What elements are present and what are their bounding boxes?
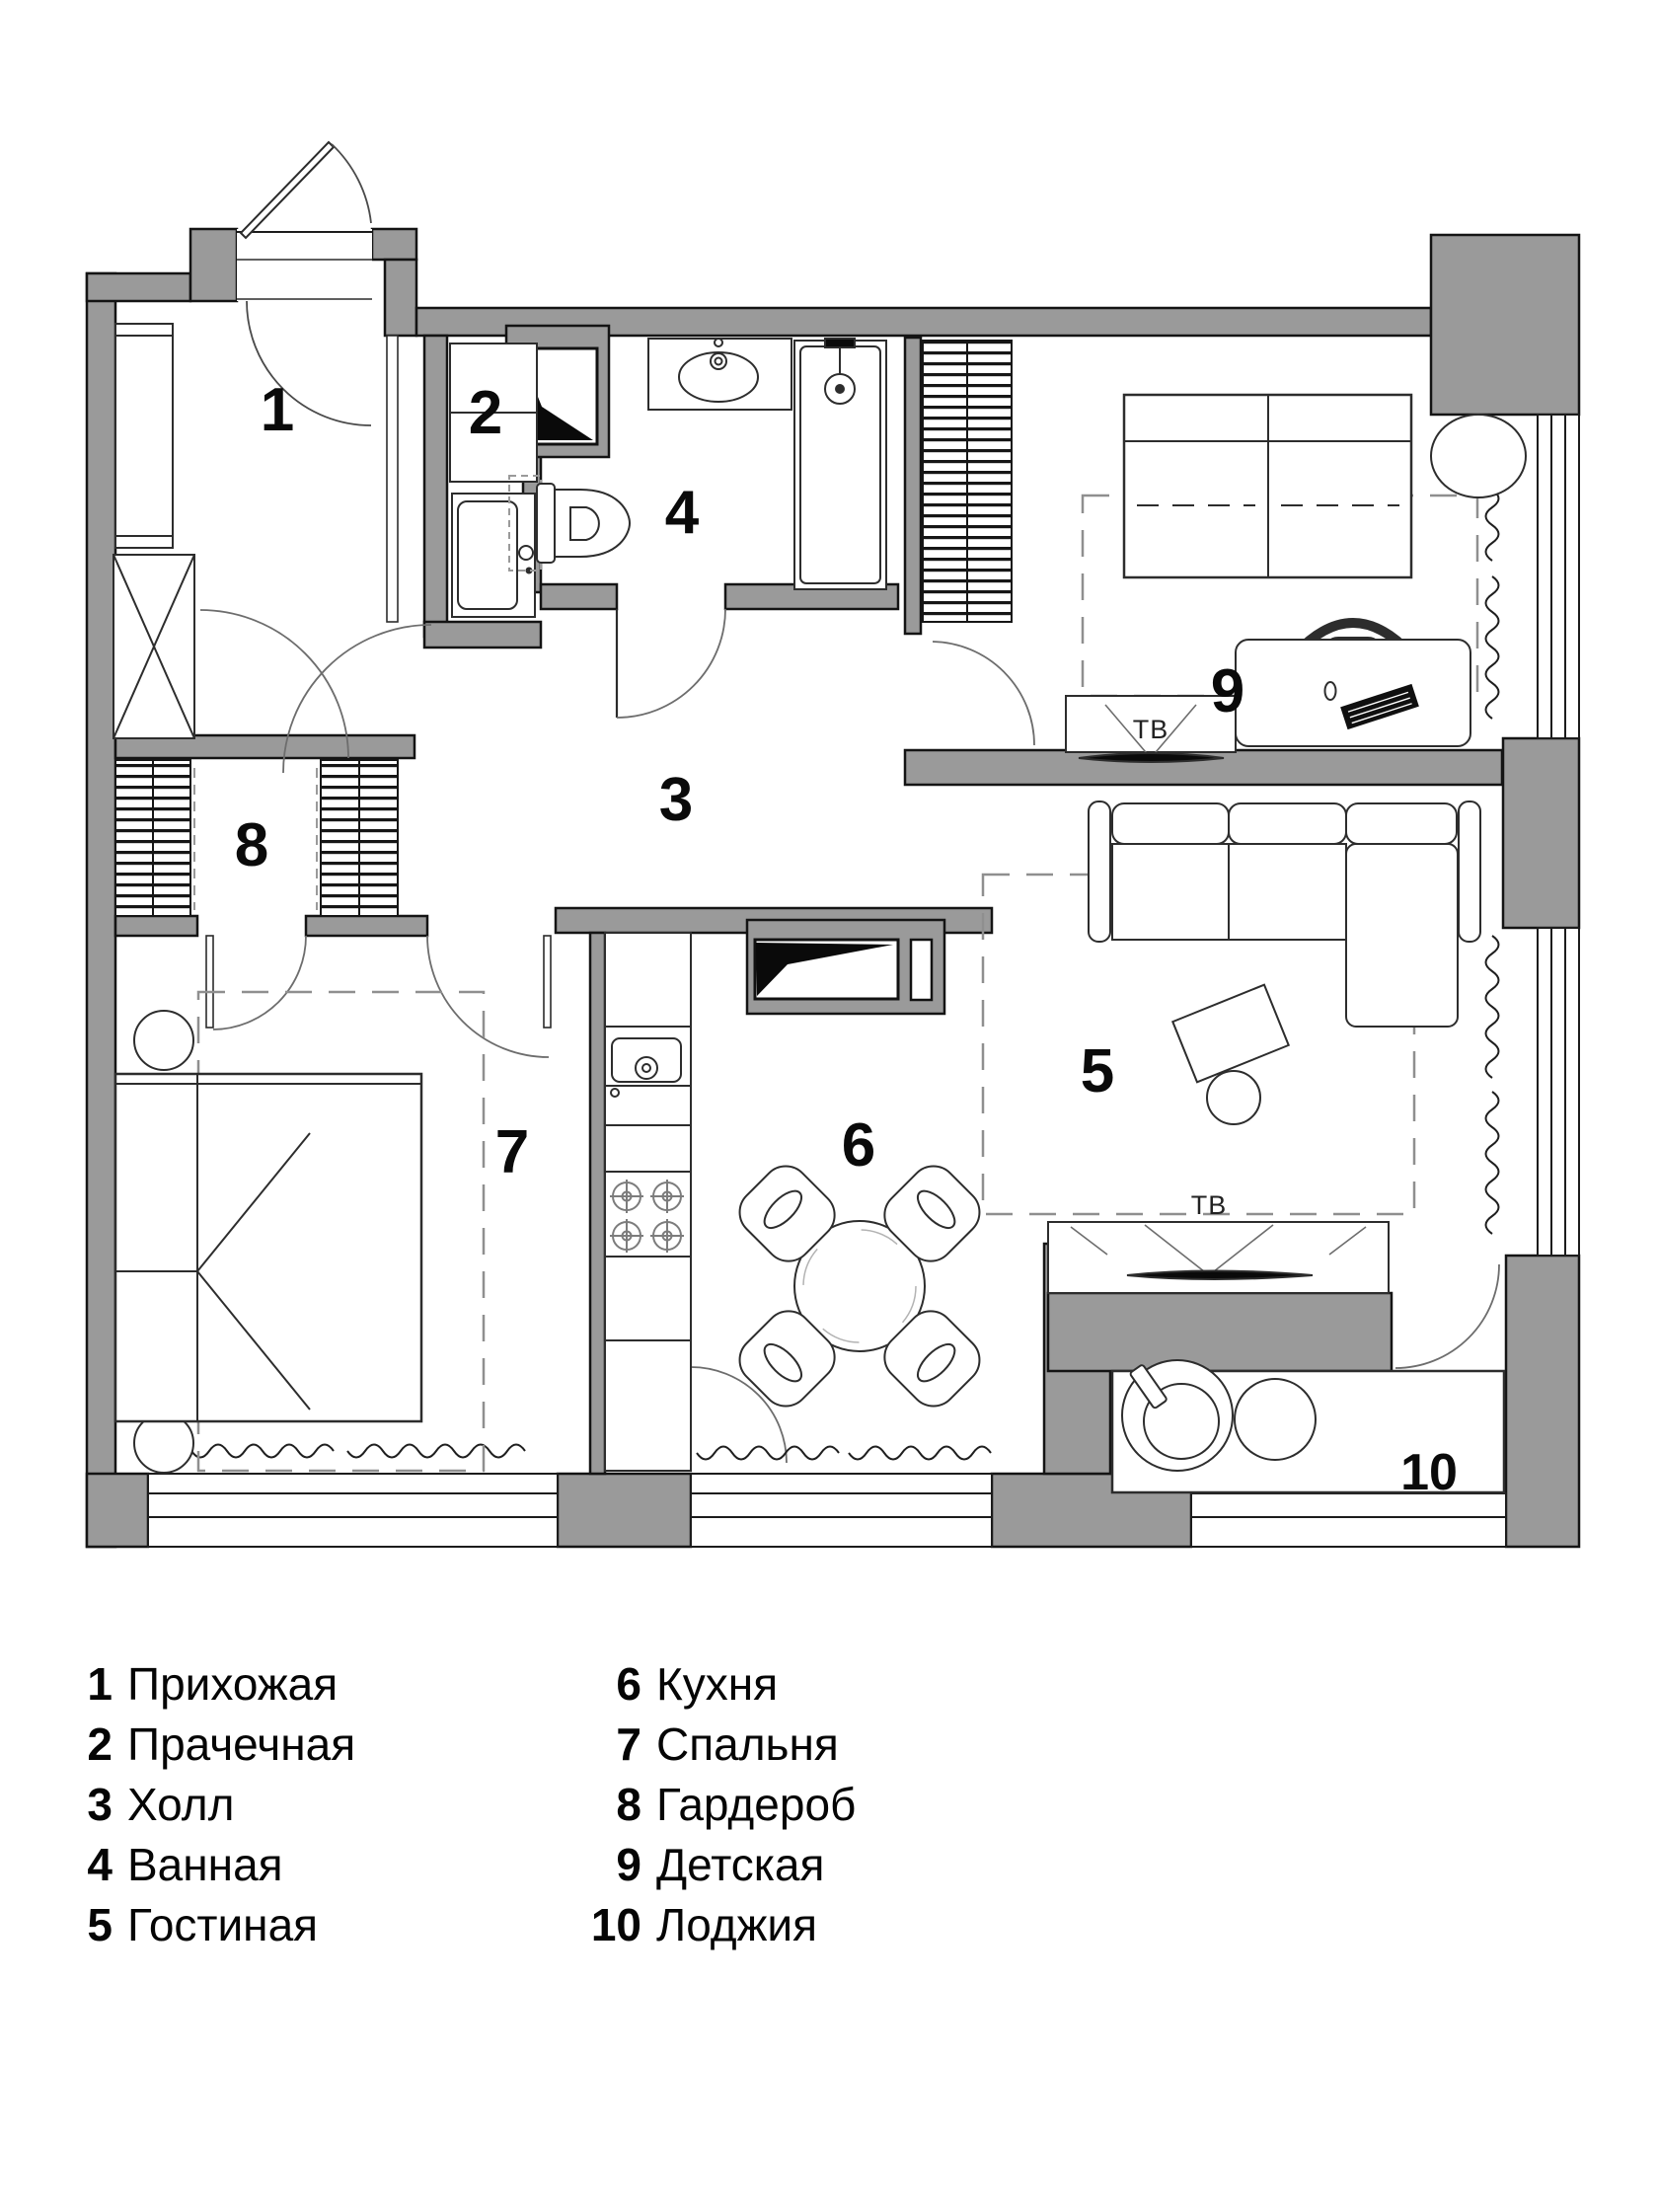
entrance-door-leaf: [241, 142, 334, 238]
entrance-door-swing: [332, 144, 371, 223]
sofa-bed: [1124, 395, 1411, 577]
curtain-kitchen-window-2: [849, 1447, 991, 1460]
legend-number: 2: [87, 1715, 113, 1775]
legend-label: Гардероб: [656, 1775, 856, 1835]
kitchen-sink: [612, 1038, 681, 1082]
entrance-step-block: [190, 229, 237, 301]
legend-number: 9: [565, 1835, 641, 1895]
kitchen-left-wall: [590, 933, 605, 1474]
bath-nursery-wall: [905, 338, 921, 634]
wardrobe-shelves-right: [317, 760, 398, 916]
legend-number: 1: [87, 1654, 113, 1715]
washing-machine: [452, 494, 535, 617]
window-living: [1538, 928, 1579, 1256]
window-nursery: [1538, 415, 1579, 738]
legend-label: Детская: [656, 1835, 824, 1895]
hallway-wardrobe-x: [113, 555, 194, 738]
window-kitchen: [691, 1474, 992, 1547]
curtain-kitchen-window: [697, 1447, 839, 1460]
room-7-bedroom: [115, 1011, 421, 1473]
bathroom-door: [617, 609, 725, 718]
curtain-nursery-window-2: [1486, 576, 1499, 719]
curtain-bedroom-window-2: [347, 1445, 525, 1458]
bath-bottom-wall-left: [541, 584, 617, 609]
room-label-2: 2: [469, 379, 502, 447]
corner-pier-bottom-right: [1506, 1256, 1579, 1547]
tv-label-living: ТВ: [1191, 1190, 1228, 1220]
legend-item: 7Спальня: [565, 1715, 856, 1775]
floor-plan: 1 2 3 4 5 6 7 8 9 10 ТВ ТВ: [0, 0, 1658, 1639]
bedroom-door: [427, 936, 551, 1057]
legend-item: 9Детская: [565, 1835, 856, 1895]
room-label-6: 6: [842, 1111, 875, 1180]
laundry-bottom-wall: [424, 622, 541, 648]
legend-item: 3Холл: [87, 1775, 355, 1835]
entrance: [237, 142, 372, 425]
sink-vanity: [648, 339, 791, 410]
loggia-door-swing: [1395, 1264, 1499, 1368]
legend-label: Прачечная: [127, 1715, 355, 1775]
legend-number: 8: [565, 1775, 641, 1835]
computer-mouse: [1325, 682, 1336, 700]
window-pier-bottom: [558, 1474, 691, 1547]
laundry-left-wall: [424, 336, 447, 637]
room-label-9: 9: [1211, 657, 1244, 725]
room-label-8: 8: [235, 811, 268, 879]
curtain-living-window: [1486, 936, 1499, 1078]
coffee-table: [1172, 985, 1288, 1083]
legend-label: Лоджия: [656, 1895, 817, 1955]
wardrobe-shelves-left: [115, 760, 194, 916]
ottoman: [1431, 415, 1526, 497]
tv-label-nursery: ТВ: [1133, 715, 1169, 744]
room-label-7: 7: [495, 1118, 529, 1186]
room-label-5: 5: [1081, 1037, 1114, 1106]
room-label-4: 4: [665, 479, 700, 547]
legend-number: 7: [565, 1715, 641, 1775]
exterior-wall-left: [87, 273, 115, 1547]
entrance-right-pier: [372, 229, 416, 260]
legend-item: 5Гостиная: [87, 1895, 355, 1955]
entrance-right-pier-lower: [385, 260, 416, 336]
hallway-bench: [115, 324, 173, 548]
curtain-living-window-2: [1486, 1092, 1499, 1234]
legend-number: 10: [565, 1895, 641, 1955]
corner-pier-bottom-left: [87, 1474, 148, 1547]
legend-item: 4Ванная: [87, 1835, 355, 1895]
legend-label: Гостиная: [127, 1895, 318, 1955]
exterior-corner-block-top-right: [1431, 235, 1579, 415]
room-label-10: 10: [1400, 1444, 1458, 1501]
window-loggia: [1191, 1493, 1506, 1547]
corner-sofa: [1089, 801, 1480, 1027]
nightstand-top: [134, 1011, 193, 1070]
wardrobe-door: [206, 936, 306, 1030]
shower-bath: [794, 339, 886, 589]
wardrobe-bottom-wall-mid: [306, 916, 427, 936]
nursery-wardrobe-shelves: [923, 341, 1012, 622]
living-tv-cabinet: [1048, 1222, 1389, 1293]
living-tv-wall: [1048, 1293, 1392, 1371]
hallway-closet-door: [387, 336, 398, 622]
room-label-1: 1: [261, 376, 294, 444]
nursery-door: [933, 642, 1034, 745]
armchair: [1122, 1360, 1233, 1471]
desk: [1236, 640, 1470, 746]
legend-number: 5: [87, 1895, 113, 1955]
cabinet-knob: [611, 1089, 619, 1097]
legend-label: Спальня: [656, 1715, 839, 1775]
exterior-wall-top-left: [87, 273, 190, 301]
pouf: [1207, 1071, 1260, 1124]
legend-item: 10Лоджия: [565, 1895, 856, 1955]
room-1-hallway: [113, 324, 398, 738]
legend-number: 4: [87, 1835, 113, 1895]
legend-label: Кухня: [656, 1654, 778, 1715]
legend-number: 6: [565, 1654, 641, 1715]
legend-item: 1Прихожая: [87, 1654, 355, 1715]
room-label-3: 3: [659, 766, 693, 834]
legend-label: Ванная: [127, 1835, 283, 1895]
legend-column-1: 1Прихожая 2Прачечная 3Холл 4Ванная 5Гост…: [87, 1654, 355, 1955]
legend-label: Холл: [127, 1775, 234, 1835]
double-bed: [115, 1074, 421, 1421]
wardrobe-bottom-wall-left: [115, 916, 197, 936]
floor-plan-page: 1 2 3 4 5 6 7 8 9 10 ТВ ТВ 1Прихожая 2Пр…: [0, 0, 1658, 2212]
legend-item: 2Прачечная: [87, 1715, 355, 1775]
legend-label: Прихожая: [127, 1654, 338, 1715]
side-table: [1235, 1379, 1316, 1460]
kitchen-hood-cabinet: [747, 920, 944, 1014]
legend-item: 8Гардероб: [565, 1775, 856, 1835]
window-bedroom: [148, 1474, 558, 1547]
legend-item: 6Кухня: [565, 1654, 856, 1715]
legend-number: 3: [87, 1775, 113, 1835]
window-pier-right: [1503, 738, 1579, 928]
legend-column-2: 6Кухня 7Спальня 8Гардероб 9Детская 10Лод…: [565, 1654, 856, 1955]
